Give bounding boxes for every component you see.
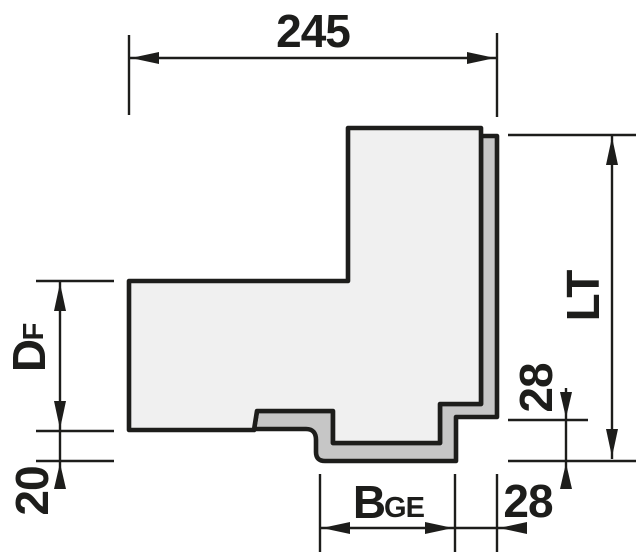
dim-245-label: 245	[276, 5, 350, 57]
dim-245-arrow-right	[467, 52, 495, 64]
dim-df-arrow-down	[54, 401, 66, 429]
dim-bge-label: B	[353, 476, 385, 528]
dim-bottom-offset: 20	[6, 461, 114, 516]
dim-245-arrow-left	[131, 52, 159, 64]
dim-28r-label: 28	[510, 363, 562, 413]
dim-lt-label: LT	[557, 270, 609, 322]
dim-df-sub-label: F	[18, 323, 50, 340]
dim-28b-label: 28	[503, 475, 553, 527]
dim-bge-arrow-right	[425, 522, 453, 534]
dim-df-label: D	[3, 340, 55, 372]
dim-right-offset: 28	[508, 363, 588, 489]
dim-groove-width: B GE 28	[320, 474, 553, 552]
dim-28r-arrow-up	[560, 463, 572, 489]
dim-frame-depth: D F	[3, 281, 114, 488]
dim-lt-arrow-down	[606, 429, 618, 457]
dim-bge-arrow-left	[322, 522, 350, 534]
technical-drawing-corner-profile: 245 D F 20 B GE 28 28	[0, 0, 640, 560]
dim-lt-arrow-up	[606, 137, 618, 165]
dim-top-width: 245	[129, 5, 497, 117]
dim-20-label: 20	[6, 466, 58, 515]
dim-df-arrow-up	[54, 283, 66, 311]
dim-bge-sub-label: GE	[384, 492, 425, 524]
frame-profile-shape	[129, 128, 481, 443]
